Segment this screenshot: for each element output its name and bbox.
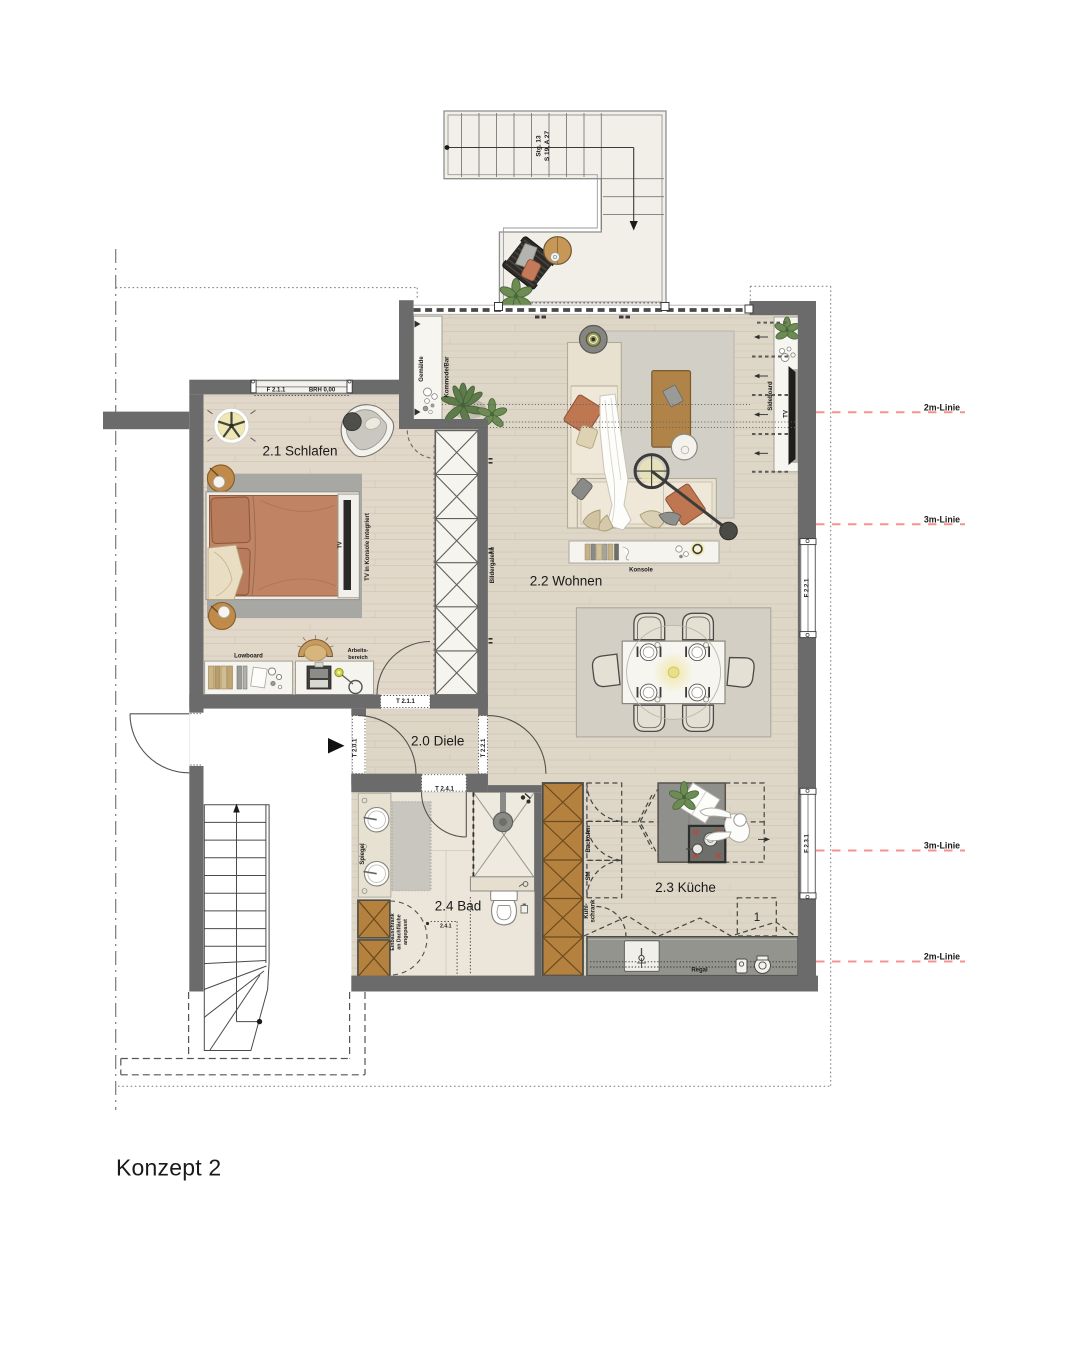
svg-text:angepasst: angepasst [403, 919, 409, 945]
svg-text:TV: TV [338, 541, 344, 548]
svg-text:Konzept 2: Konzept 2 [116, 1155, 221, 1181]
svg-text:TV in Konsole integriert: TV in Konsole integriert [365, 513, 371, 581]
svg-text:bereich: bereich [348, 655, 368, 661]
svg-text:3m-Linie: 3m-Linie [924, 841, 960, 851]
svg-text:F 2.1.1: F 2.1.1 [267, 388, 286, 394]
svg-text:T 2.4.1: T 2.4.1 [435, 787, 454, 793]
svg-text:T 2.1.1: T 2.1.1 [396, 699, 415, 705]
svg-text:2.4 Bad: 2.4 Bad [435, 899, 482, 914]
svg-text:T 2.0.1: T 2.0.1 [353, 738, 359, 757]
svg-text:2m-Linie: 2m-Linie [924, 402, 960, 412]
svg-text:Konsole: Konsole [629, 568, 653, 574]
svg-text:Backofen: Backofen [586, 825, 592, 852]
svg-text:Kühl-: Kühl- [584, 903, 590, 918]
svg-text:2.2 Wohnen: 2.2 Wohnen [530, 574, 603, 589]
svg-text:2.4.1: 2.4.1 [440, 924, 452, 930]
svg-text:schrank: schrank [591, 899, 597, 923]
svg-text:an Dachfläche: an Dachfläche [397, 914, 403, 949]
svg-text:1: 1 [754, 912, 760, 924]
svg-text:Einbauschrank: Einbauschrank [390, 913, 396, 950]
svg-text:F 2.2.1: F 2.2.1 [805, 578, 811, 597]
svg-text:TV: TV [784, 410, 790, 418]
svg-text:S 19, A 27: S 19, A 27 [544, 131, 551, 162]
svg-text:2.3 Küche: 2.3 Küche [655, 880, 716, 895]
svg-text:SM: SM [586, 871, 592, 880]
svg-text:Sideboard: Sideboard [768, 381, 774, 411]
svg-text:2.0 Diele: 2.0 Diele [411, 734, 464, 749]
svg-text:Stg. 13: Stg. 13 [536, 135, 543, 157]
svg-text:2.1 Schlafen: 2.1 Schlafen [262, 444, 337, 459]
svg-text:T 2.2.1: T 2.2.1 [481, 738, 487, 757]
svg-text:Spiegel: Spiegel [360, 843, 366, 865]
svg-text:BRH 0,00: BRH 0,00 [309, 388, 336, 394]
svg-text:Lowboard: Lowboard [234, 654, 263, 660]
svg-text:Regal: Regal [691, 968, 708, 974]
svg-text:Gemälde: Gemälde [419, 356, 425, 382]
svg-text:3m-Linie: 3m-Linie [924, 514, 960, 524]
svg-text:Arbeits-: Arbeits- [348, 648, 369, 654]
svg-text:Kommode/Bar: Kommode/Bar [445, 356, 451, 398]
svg-text:F 2.3.1: F 2.3.1 [805, 834, 811, 853]
svg-text:2m-Linie: 2m-Linie [924, 952, 960, 962]
svg-text:Bildergalerie: Bildergalerie [490, 546, 496, 583]
